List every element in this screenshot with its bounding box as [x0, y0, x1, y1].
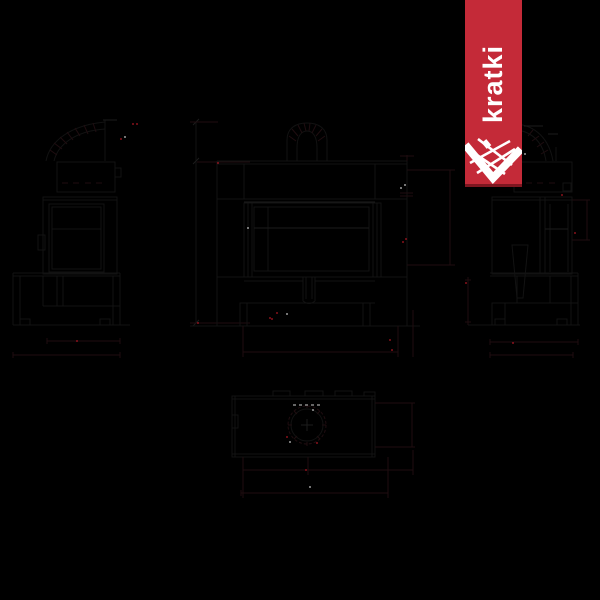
drawing-canvas: kratki	[0, 0, 600, 600]
flue-hatching-right	[528, 130, 548, 154]
speck-red	[391, 349, 393, 351]
speck-red	[271, 318, 273, 320]
speck-red	[316, 442, 318, 444]
speck-red	[276, 312, 278, 314]
speck-white	[289, 441, 291, 443]
speck-red	[217, 162, 219, 164]
kratki-brand-banner: kratki	[465, 0, 522, 187]
top-view	[232, 391, 415, 498]
front-base	[190, 277, 420, 326]
speck-red	[465, 282, 467, 284]
kratki-logo-icon	[465, 138, 522, 185]
front-view-dimensions	[243, 155, 455, 357]
speck-red	[512, 342, 514, 344]
speck-white	[404, 184, 406, 186]
speck-white	[309, 486, 311, 488]
speck-white	[312, 409, 314, 411]
speck-white	[524, 153, 526, 155]
flue-hatching	[50, 123, 96, 155]
speck-red	[405, 238, 407, 240]
speck-white	[400, 187, 402, 189]
front-view	[190, 119, 455, 357]
speck-red	[269, 317, 271, 319]
speck-red	[120, 138, 122, 140]
speck-red	[402, 241, 404, 243]
speck-red	[136, 123, 138, 125]
left-view-dimensions	[13, 338, 120, 358]
speck-white	[247, 227, 249, 229]
speck-red	[574, 232, 576, 234]
speck-red	[389, 339, 391, 341]
brand-wordmark: kratki	[465, 18, 522, 150]
firebox-door	[244, 203, 381, 277]
speck-red	[286, 436, 288, 438]
speck-red	[76, 340, 78, 342]
top-view-dimensions	[241, 403, 415, 498]
flue-collar	[287, 123, 327, 161]
speck-red	[132, 123, 134, 125]
door-handle	[512, 245, 528, 298]
speck-red	[305, 469, 307, 471]
speck-white	[286, 313, 288, 315]
left-side-view	[13, 120, 130, 358]
speck-red	[197, 322, 199, 324]
flue-outlet-circle	[288, 404, 326, 446]
speck-red	[561, 194, 563, 196]
speck-white	[124, 136, 126, 138]
